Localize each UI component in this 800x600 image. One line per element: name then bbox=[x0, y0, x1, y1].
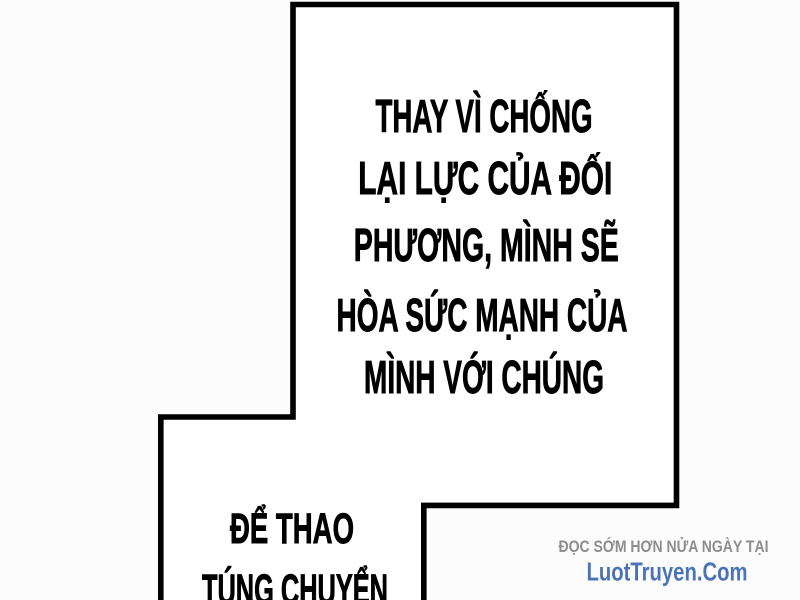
svg-text:THAY VÌ CHỐNG: THAY VÌ CHỐNG bbox=[376, 90, 593, 142]
svg-text:ĐỌC SỚM HƠN NỬA NGÀY TẠI: ĐỌC SỚM HƠN NỬA NGÀY TẠI bbox=[559, 537, 769, 556]
svg-text:LẠI LỰC CỦA ĐỐI: LẠI LỰC CỦA ĐỐI bbox=[358, 152, 612, 204]
svg-text:ĐỂ THAO: ĐỂ THAO bbox=[230, 504, 354, 553]
svg-text:HÒA SỨC MẠNH CỦA: HÒA SỨC MẠNH CỦA bbox=[337, 289, 628, 341]
svg-text:MÌNH VỚI CHÚNG: MÌNH VỚI CHÚNG bbox=[364, 351, 604, 403]
svg-text:PHƯƠNG, MÌNH SẼ: PHƯƠNG, MÌNH SẼ bbox=[354, 219, 619, 271]
svg-text:TÚNG CHUYỂN: TÚNG CHUYỂN bbox=[202, 565, 388, 600]
svg-text:LuotTruyen.Com: LuotTruyen.Com bbox=[587, 557, 748, 587]
